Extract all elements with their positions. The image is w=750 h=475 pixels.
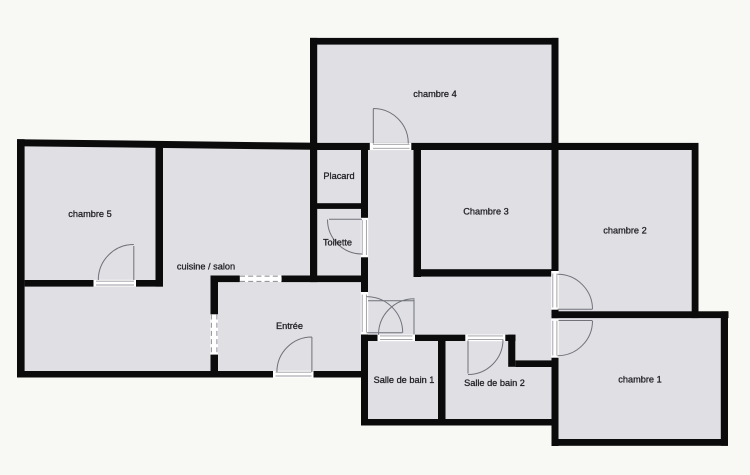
svg-text:Entrée: Entrée	[276, 321, 303, 331]
svg-text:chambre 2: chambre 2	[603, 226, 646, 236]
svg-text:Salle de bain 1: Salle de bain 1	[374, 375, 435, 385]
svg-text:chambre 1: chambre 1	[618, 375, 661, 385]
svg-text:Toilette: Toilette	[323, 238, 352, 248]
svg-text:cuisine / salon: cuisine / salon	[177, 262, 235, 272]
svg-text:Chambre 3: Chambre 3	[463, 207, 508, 217]
svg-text:Placard: Placard	[323, 171, 354, 181]
svg-text:chambre 5: chambre 5	[68, 209, 111, 219]
svg-text:Salle de bain 2: Salle de bain 2	[464, 378, 525, 388]
svg-text:chambre 4: chambre 4	[413, 89, 456, 99]
